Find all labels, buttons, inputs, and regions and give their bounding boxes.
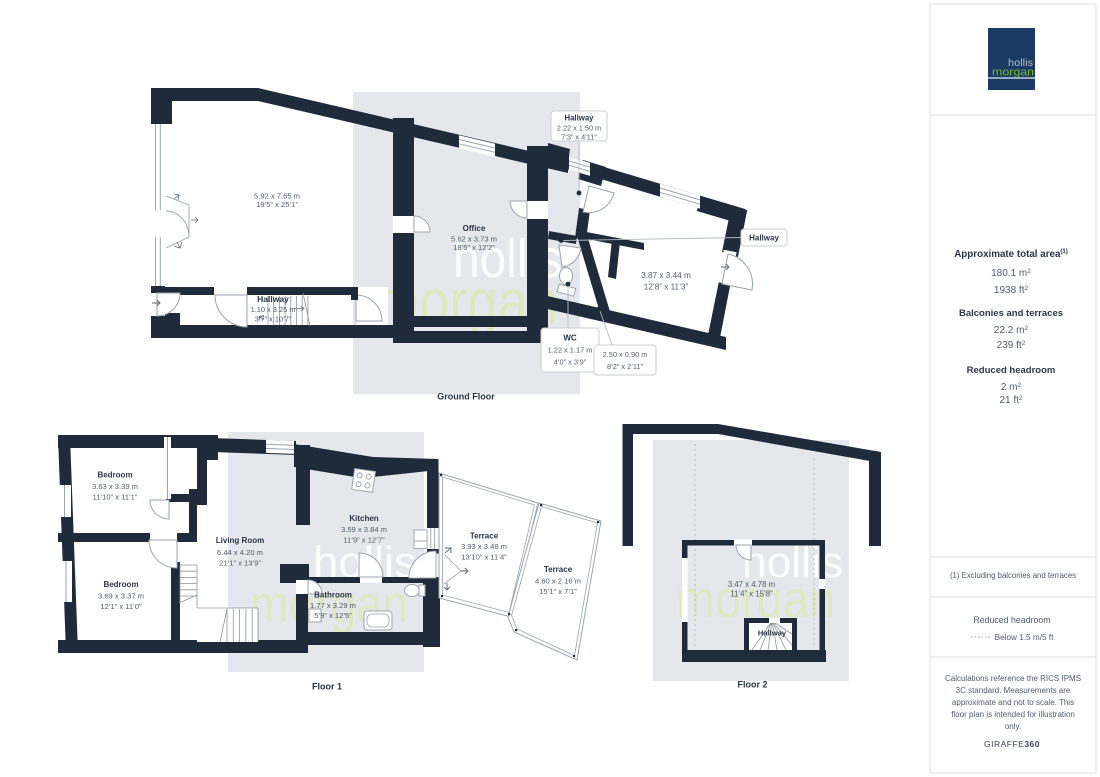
svg-text:Balconies and terraces: Balconies and terraces xyxy=(959,308,1063,319)
svg-text:1.10 x 3.25 m: 1.10 x 3.25 m xyxy=(251,305,296,314)
svg-text:19’5” x 25’1”: 19’5” x 25’1” xyxy=(256,200,298,209)
svg-text:(1) Excluding balconies and te: (1) Excluding balconies and terraces xyxy=(950,571,1076,580)
svg-text:239 ft2: 239 ft2 xyxy=(997,340,1026,351)
svg-text:Kitchen: Kitchen xyxy=(349,514,378,523)
svg-text:4.60 x 2.16 m: 4.60 x 2.16 m xyxy=(535,577,581,586)
svg-text:Bedroom: Bedroom xyxy=(97,471,132,480)
svg-text:1.77 x 3.29 m: 1.77 x 3.29 m xyxy=(310,601,356,610)
svg-text:4’0” x 3’9”: 4’0” x 3’9” xyxy=(554,358,587,367)
svg-text:Terrace: Terrace xyxy=(470,532,499,541)
svg-text:Below 1.5 m/5 ft: Below 1.5 m/5 ft xyxy=(995,633,1054,642)
svg-text:GIRAFFE360: GIRAFFE360 xyxy=(984,739,1040,749)
svg-text:Terrace: Terrace xyxy=(544,565,573,574)
svg-text:7’3” x 4’11”: 7’3” x 4’11” xyxy=(561,133,597,142)
svg-text:Approximate total area(1): Approximate total area(1) xyxy=(954,249,1068,260)
svg-text:Ground Floor: Ground Floor xyxy=(437,392,495,402)
svg-text:Living Room: Living Room xyxy=(216,536,264,545)
svg-text:3C standard. Measurements are: 3C standard. Measurements are xyxy=(956,686,1071,695)
svg-text:3.93 x 3.48 m: 3.93 x 3.48 m xyxy=(461,542,507,551)
svg-text:morgan: morgan xyxy=(992,67,1034,79)
svg-text:2.50 x 0.90 m: 2.50 x 0.90 m xyxy=(603,350,648,359)
svg-text:Reduced headroom: Reduced headroom xyxy=(967,365,1056,376)
svg-text:Bathroom: Bathroom xyxy=(314,591,352,600)
svg-text:Office: Office xyxy=(463,224,486,233)
svg-text:6.44 x 4.20 m: 6.44 x 4.20 m xyxy=(217,548,263,557)
svg-text:12’1” x 11’0”: 12’1” x 11’0” xyxy=(100,602,142,611)
svg-text:floor plan is intended for ill: floor plan is intended for illustration xyxy=(951,710,1075,719)
svg-text:3’7” x 10’7”: 3’7” x 10’7” xyxy=(255,315,292,324)
svg-text:Hallway: Hallway xyxy=(257,294,289,304)
svg-text:22.2 m2: 22.2 m2 xyxy=(994,325,1029,336)
svg-text:11’4” x 15’8”: 11’4” x 15’8” xyxy=(730,590,773,599)
svg-text:Hallway: Hallway xyxy=(749,234,779,243)
svg-text:Reduced headroom: Reduced headroom xyxy=(973,615,1050,625)
svg-text:1.22 x 1.17 m: 1.22 x 1.17 m xyxy=(548,346,593,355)
svg-text:13’10” x 11’4”: 13’10” x 11’4” xyxy=(461,553,507,562)
svg-text:5’9” x 12’5”: 5’9” x 12’5” xyxy=(314,611,352,620)
svg-text:8’2” x 2’11”: 8’2” x 2’11” xyxy=(607,362,644,371)
svg-text:Hallway: Hallway xyxy=(758,629,787,638)
svg-text:3.69 x 3.37 m: 3.69 x 3.37 m xyxy=(98,592,144,601)
svg-text:3.87 x 3.44 m: 3.87 x 3.44 m xyxy=(641,271,691,280)
svg-text:18’5” x 12’2”: 18’5” x 12’2” xyxy=(453,243,495,252)
svg-text:180.1 m2: 180.1 m2 xyxy=(991,268,1031,279)
svg-text:3.63 x 3.39 m: 3.63 x 3.39 m xyxy=(92,482,138,491)
svg-text:12’8” x 11’3”: 12’8” x 11’3” xyxy=(644,283,689,292)
svg-text:1938 ft2: 1938 ft2 xyxy=(994,285,1029,296)
svg-text:Bedroom: Bedroom xyxy=(103,580,138,589)
svg-text:Floor 1: Floor 1 xyxy=(312,682,342,692)
svg-text:Floor 2: Floor 2 xyxy=(737,680,767,690)
svg-text:3.47 x 4.78 m: 3.47 x 4.78 m xyxy=(728,580,775,589)
svg-text:approximate and not to scale.: approximate and not to scale. This xyxy=(952,698,1074,707)
svg-text:Calculations reference the RIC: Calculations reference the RICS IPMS xyxy=(945,674,1081,683)
svg-text:3.59 x 3.84 m: 3.59 x 3.84 m xyxy=(341,525,387,534)
svg-text:15’1” x 7’1”: 15’1” x 7’1” xyxy=(539,587,577,596)
svg-text:WC: WC xyxy=(563,334,577,343)
svg-text:11’9” x 12’7”: 11’9” x 12’7” xyxy=(343,536,385,545)
svg-text:2.22 x 1.50 m: 2.22 x 1.50 m xyxy=(557,124,601,133)
svg-text:11’10” x 11’1”: 11’10” x 11’1” xyxy=(93,493,138,502)
svg-text:only.: only. xyxy=(1005,722,1021,731)
svg-text:21’1” x 13’9”: 21’1” x 13’9” xyxy=(219,559,261,568)
svg-text:Hallway: Hallway xyxy=(564,114,594,123)
